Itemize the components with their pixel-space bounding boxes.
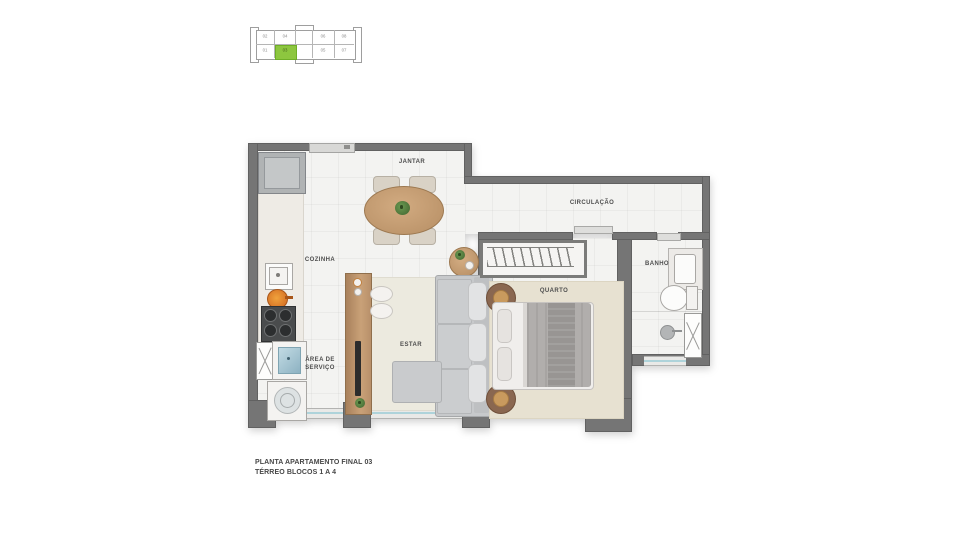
- laundry-tank-basin: [278, 347, 301, 374]
- side-table-cup: [465, 261, 474, 270]
- floorplan-page: 02 04 06 08 01 03 05 07: [0, 0, 960, 540]
- bedroom-door-leaf: [574, 226, 613, 234]
- wall-corridor-b: [612, 232, 657, 240]
- ottoman: [392, 361, 442, 403]
- bed-pillow: [497, 347, 512, 381]
- sofa-back-pillow: [468, 323, 487, 362]
- room-label-quarto: QUARTO: [540, 288, 568, 294]
- fridge-inner: [264, 157, 300, 189]
- shower-drain: [660, 325, 675, 340]
- stove-burner: [279, 309, 292, 322]
- window-bathroom: [644, 356, 686, 366]
- bedside-rug-center: [493, 391, 509, 407]
- shower-divider-line: [632, 311, 702, 312]
- toilet-tank: [686, 286, 698, 310]
- bathroom-door-leaf: [657, 233, 681, 241]
- wall-corridor-c: [678, 232, 710, 240]
- sofa-seat: [437, 369, 472, 414]
- bed-throw: [548, 303, 575, 387]
- side-table-plant: [455, 250, 465, 260]
- room-label-banho: BANHO: [645, 261, 669, 267]
- sofa-back-pillow: [468, 282, 487, 321]
- rack-decor: [353, 278, 362, 287]
- shower-arm: [672, 330, 682, 332]
- sofa-back-pillow: [468, 364, 487, 403]
- room-label-cozinha: COZINHA: [305, 257, 335, 263]
- caption-line-2: TÉRREO BLOCOS 1 A 4: [255, 469, 336, 476]
- bathroom-sink: [674, 254, 696, 284]
- rack-plant: [355, 398, 365, 408]
- room-label-circulacao: CIRCULAÇÃO: [570, 200, 614, 206]
- stool: [370, 286, 393, 302]
- room-label-jantar: JANTAR: [399, 159, 425, 165]
- wardrobe-hangers: [487, 247, 574, 267]
- wall-corridor-a: [478, 232, 573, 240]
- sink-drain: [276, 273, 280, 277]
- room-label-area-servico-2: SERVIÇO: [305, 365, 335, 371]
- stove-burner: [279, 324, 292, 337]
- wall-right: [702, 176, 710, 366]
- stove-burner: [264, 324, 277, 337]
- table-plant: [395, 201, 410, 215]
- washer-drum-inner: [280, 393, 295, 408]
- wall-top-left: [248, 143, 472, 151]
- caption-line-1: PLANTA APARTAMENTO FINAL 03: [255, 459, 372, 466]
- apartment-plan: JANTAR COZINHA CIRCULAÇÃO BANHO QUARTO E…: [0, 0, 960, 540]
- rack-decor: [354, 288, 362, 296]
- sofa-seat: [437, 279, 472, 324]
- tv: [355, 341, 361, 396]
- wall-left: [248, 143, 258, 428]
- room-label-area-servico-1: ÁREA DE: [305, 357, 335, 363]
- sofa-seat: [437, 324, 472, 369]
- shower-glass-partition: [684, 313, 702, 358]
- stool: [370, 303, 393, 319]
- pan-handle: [285, 296, 293, 299]
- entry-door-handle: [344, 145, 350, 149]
- tank-drain: [287, 357, 290, 360]
- drying-rack: [256, 342, 273, 380]
- bed-pillow: [497, 309, 512, 343]
- toilet-bowl: [660, 285, 688, 311]
- wall-top-right: [464, 176, 710, 184]
- room-label-estar: ESTAR: [400, 342, 422, 348]
- stove-burner: [264, 309, 277, 322]
